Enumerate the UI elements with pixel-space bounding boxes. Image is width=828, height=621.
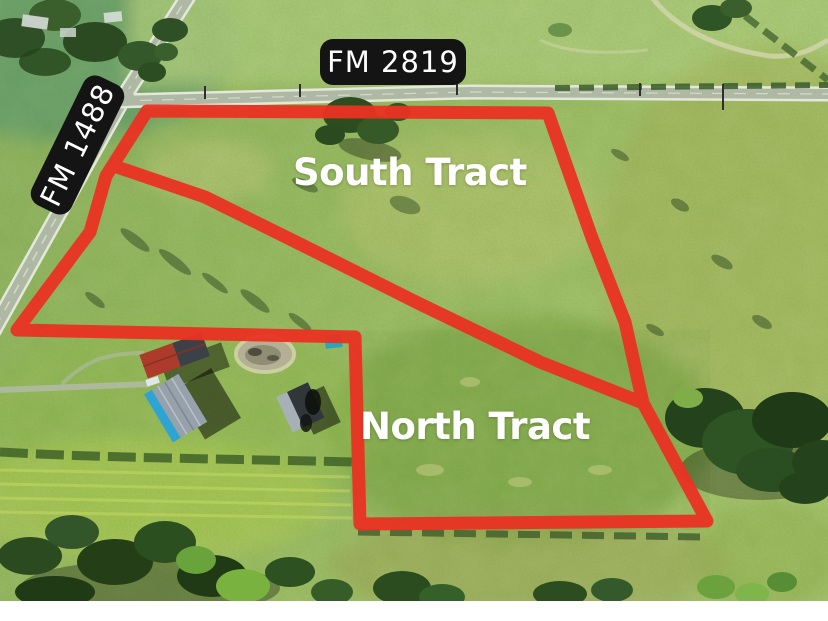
aerial-listing-image: FM 2819 FM 1488 South Tract North Tract: [0, 0, 828, 621]
road-label-fm2819: FM 2819: [320, 39, 466, 85]
road-label-fm2819-text: FM 2819: [327, 45, 459, 79]
bottom-white-bar: [0, 601, 828, 621]
north-tract-label: North Tract: [360, 405, 590, 448]
south-tract-label: South Tract: [293, 151, 527, 194]
